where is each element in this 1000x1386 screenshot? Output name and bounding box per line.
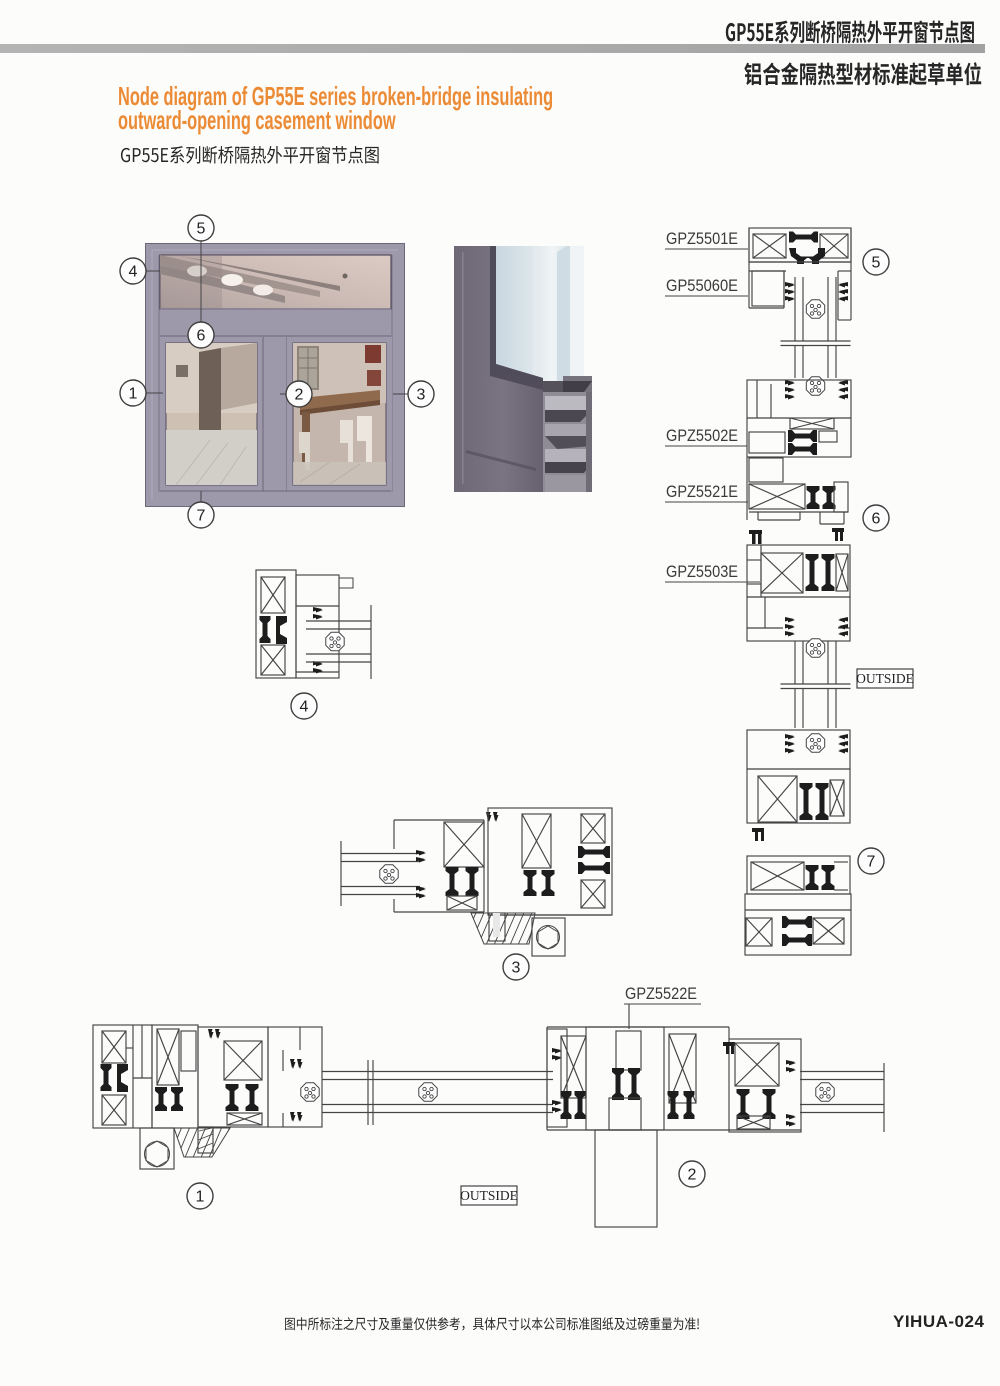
svg-text:OUTSIDE: OUTSIDE [856,671,914,686]
svg-text:GPZ5522E: GPZ5522E [625,984,697,1003]
svg-text:6: 6 [197,328,206,345]
svg-text:4: 4 [129,264,138,281]
svg-text:7: 7 [197,508,206,525]
svg-text:1: 1 [129,386,138,403]
svg-text:1: 1 [196,1189,205,1206]
svg-text:2: 2 [295,387,304,404]
svg-text:GPZ5521E: GPZ5521E [666,482,738,501]
svg-text:4: 4 [300,699,309,716]
svg-text:GPZ5501E: GPZ5501E [666,229,738,248]
svg-text:GPZ5503E: GPZ5503E [666,562,738,581]
svg-text:2: 2 [688,1167,697,1184]
svg-text:OUTSIDE: OUTSIDE [460,1188,518,1203]
svg-text:6: 6 [872,511,881,528]
svg-text:3: 3 [512,960,521,977]
svg-text:GP55060E: GP55060E [666,276,738,295]
svg-text:GPZ5502E: GPZ5502E [666,426,738,445]
svg-text:5: 5 [872,255,881,272]
svg-text:5: 5 [197,221,206,238]
svg-text:3: 3 [417,387,426,404]
svg-text:7: 7 [867,854,876,871]
